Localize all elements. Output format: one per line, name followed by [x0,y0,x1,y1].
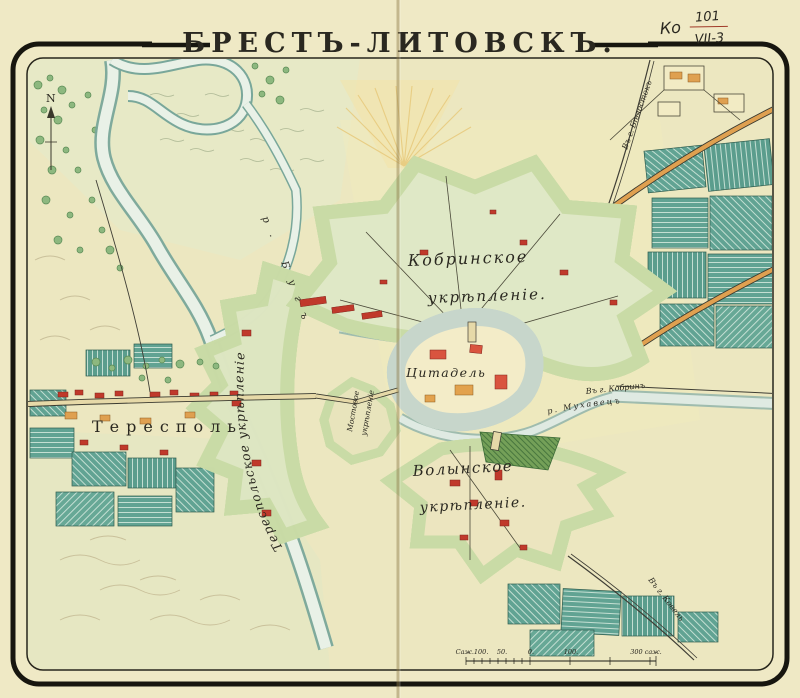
scale-label-0: 0. [528,648,534,656]
scale-label-50: 50. [497,648,507,656]
scale-label-300: 300 саж. [630,648,661,656]
archive-mark-denominator: VII-3 [694,31,725,48]
label-terespol-town: Тересполь [92,417,243,436]
map-canvas: N Кобринское укрѣпленіе. Цитадель Волынс… [0,0,800,698]
map-sheet: N Кобринское укрѣпленіе. Цитадель Волынс… [0,0,800,698]
archive-mark-numerator: 101 [695,9,721,26]
compass-n-label: N [46,92,56,105]
label-citadel: Цитадель [406,365,486,380]
scale-label-100: 100. [564,648,578,656]
fold-seam [397,0,401,698]
archive-mark-prefix: Ко [659,18,682,38]
scale-label-start: Саж.100. [456,648,489,656]
